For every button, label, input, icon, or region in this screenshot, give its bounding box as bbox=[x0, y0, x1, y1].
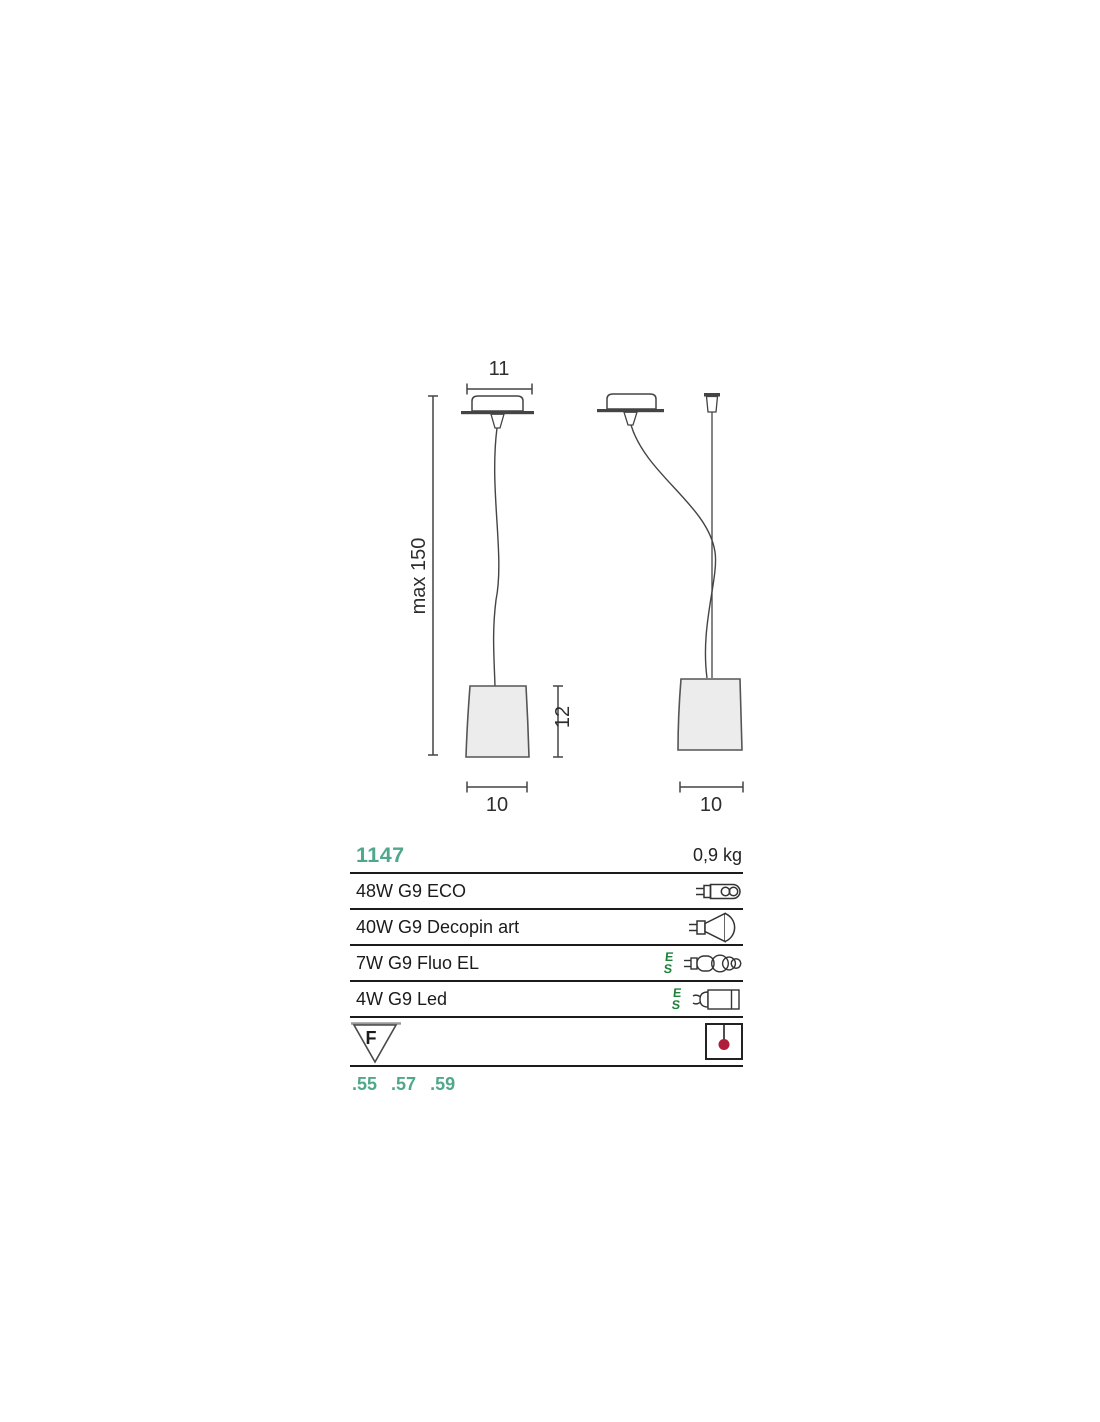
dim-label-max-height: max 150 bbox=[407, 501, 431, 651]
energy-saving-mark: ES bbox=[661, 952, 676, 975]
catalog-page: 11 max 150 12 10 10 1147 0,9 kg 48W G9 E… bbox=[0, 0, 1100, 1422]
fluorescent-bulb-icon bbox=[684, 952, 742, 975]
cable-side bbox=[631, 425, 716, 678]
finish-code: .57 bbox=[391, 1074, 416, 1095]
led-bulb-icon bbox=[692, 987, 742, 1012]
halogen-capsule-icon bbox=[696, 883, 742, 900]
dim-label-shade-width-front: 10 bbox=[464, 793, 530, 817]
pendant-mounting-icon bbox=[705, 1023, 743, 1060]
finish-code: .55 bbox=[352, 1074, 377, 1095]
pendant-lamp-drawing bbox=[340, 350, 760, 820]
lamp-label: 7W G9 Fluo EL bbox=[356, 953, 479, 974]
dim-label-shade-height: 12 bbox=[551, 687, 575, 747]
lamp-label: 4W G9 Led bbox=[356, 989, 447, 1010]
weight-value: 0,9 kg bbox=[693, 845, 742, 866]
lamp-label: 40W G9 Decopin art bbox=[356, 917, 519, 938]
model-number: 1147 bbox=[356, 843, 405, 868]
dim-label-canopy-width: 11 bbox=[464, 357, 534, 381]
finish-codes: .55 .57 .59 bbox=[350, 1074, 743, 1095]
lamp-row-led: 4W G9 Led ES bbox=[350, 982, 743, 1018]
canopy-side bbox=[607, 394, 656, 409]
safety-symbols-row: F bbox=[350, 1018, 743, 1067]
spec-table: 1147 0,9 kg 48W G9 ECO 40W G9 Decopin ar… bbox=[350, 839, 743, 1095]
dim-label-shade-width-side: 10 bbox=[678, 793, 744, 817]
lamp-row-fluo: 7W G9 Fluo EL ES bbox=[350, 946, 743, 982]
strain-relief-side bbox=[624, 412, 637, 425]
lamp-row-eco: 48W G9 ECO bbox=[350, 874, 743, 910]
dim-line-canopy-width bbox=[467, 384, 532, 395]
canopy-front bbox=[472, 396, 523, 411]
energy-saving-mark: ES bbox=[669, 988, 684, 1011]
front-view-drawing bbox=[428, 384, 563, 793]
finish-code: .59 bbox=[430, 1074, 455, 1095]
shade-front bbox=[466, 686, 529, 757]
lamp-row-decopin: 40W G9 Decopin art bbox=[350, 910, 743, 946]
cable-front bbox=[494, 428, 499, 686]
reflector-bulb-icon bbox=[689, 910, 742, 945]
f-mark-letter: F bbox=[366, 1028, 377, 1048]
lamp-label: 48W G9 ECO bbox=[356, 881, 466, 902]
dim-line-shade-width-side bbox=[680, 782, 743, 793]
shade-side bbox=[678, 679, 742, 750]
spec-header-row: 1147 0,9 kg bbox=[350, 839, 743, 874]
strain-relief-front bbox=[491, 414, 504, 428]
dim-line-shade-width-front bbox=[467, 782, 527, 793]
f-mark-icon: F bbox=[351, 1022, 403, 1066]
cable-gripper-body bbox=[707, 397, 718, 413]
side-view-drawing bbox=[597, 393, 743, 793]
